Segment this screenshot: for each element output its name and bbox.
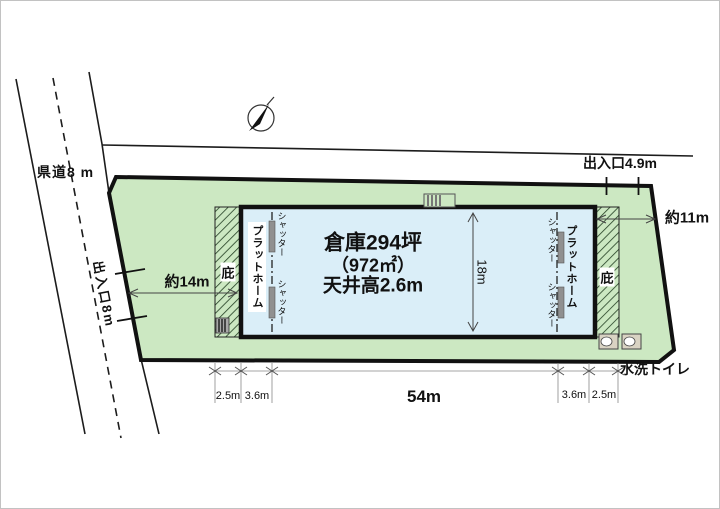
east-clearance-label: 約11m	[665, 207, 709, 228]
warehouse-ceiling-height: 天井高2.6m	[258, 275, 488, 296]
toilet-label: 水洗トイレ	[620, 359, 690, 379]
warehouse-area-tsubo: 倉庫294坪	[258, 232, 488, 256]
site-plan: 県道8 m 出入口8m 約14m 出入口4.9m 約11m 倉庫294坪 （97…	[0, 0, 720, 509]
north-entrance-label: 出入口4.9m	[583, 153, 657, 173]
shutter-label-right-bottom: シャッター	[546, 283, 559, 328]
steps-west	[216, 318, 229, 333]
dim-eaves-left: 2.5m	[216, 390, 240, 402]
dim-platform-left: 3.6m	[245, 390, 269, 402]
north-arrow-icon	[248, 97, 274, 131]
road-west-edge	[16, 79, 85, 434]
shutter-label-left-bottom: シャッター	[276, 280, 289, 325]
west-clearance-label: 約14m	[164, 271, 209, 292]
dim-platform-right: 3.6m	[562, 389, 586, 401]
road-width-label: 県道8 m	[37, 162, 94, 182]
shutter-label-right-top: シャッター	[546, 218, 559, 263]
eaves-left-label: 庇	[220, 263, 235, 282]
warehouse-area-sqm: （972㎡）	[258, 255, 488, 275]
dim-eaves-right: 2.5m	[592, 389, 616, 401]
dim-main-floor: 54m	[407, 387, 441, 407]
road-centerline	[53, 78, 121, 438]
platform-left-label: プラットホーム	[248, 222, 266, 312]
warehouse-title: 倉庫294坪 （972㎡） 天井高2.6m	[258, 232, 488, 297]
steps-north	[424, 194, 455, 207]
shutter-label-left-top: シャッター	[276, 212, 289, 257]
platform-right-label: プラットホーム	[563, 225, 579, 309]
eaves-right-label: 庇	[599, 268, 614, 287]
depth-dimension-label: 18m	[475, 259, 490, 284]
